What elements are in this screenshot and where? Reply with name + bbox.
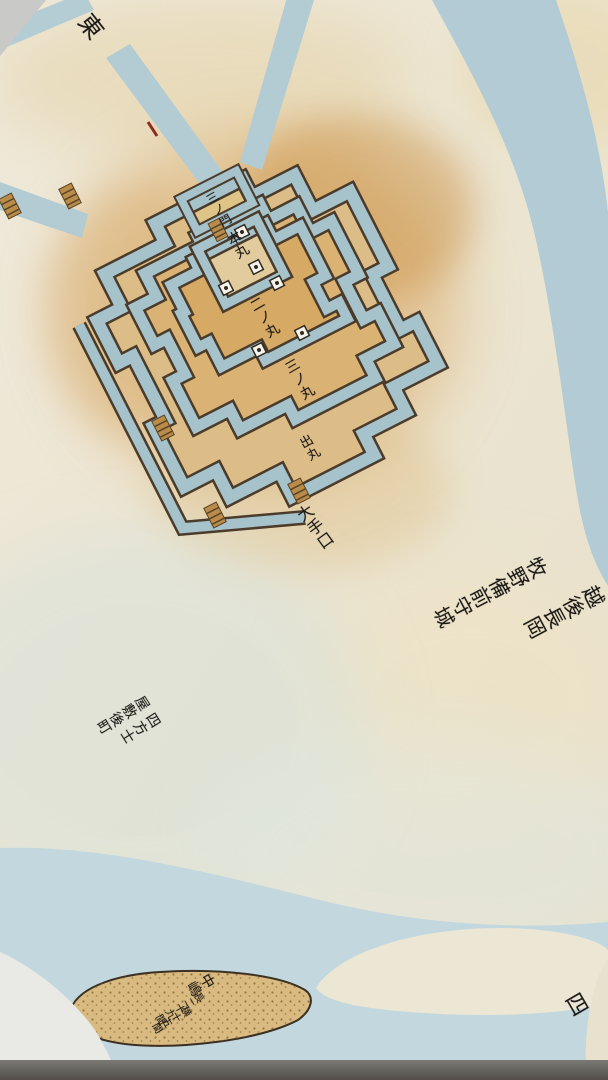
map-artwork xyxy=(0,0,608,1080)
frame-bar xyxy=(0,1060,608,1080)
photo-of-old-castle-map: 東 三ノ門 本丸 二ノ丸 三ノ丸 出丸 大手口 越後長岡 牧野備前守城 四方士 … xyxy=(0,0,608,1080)
